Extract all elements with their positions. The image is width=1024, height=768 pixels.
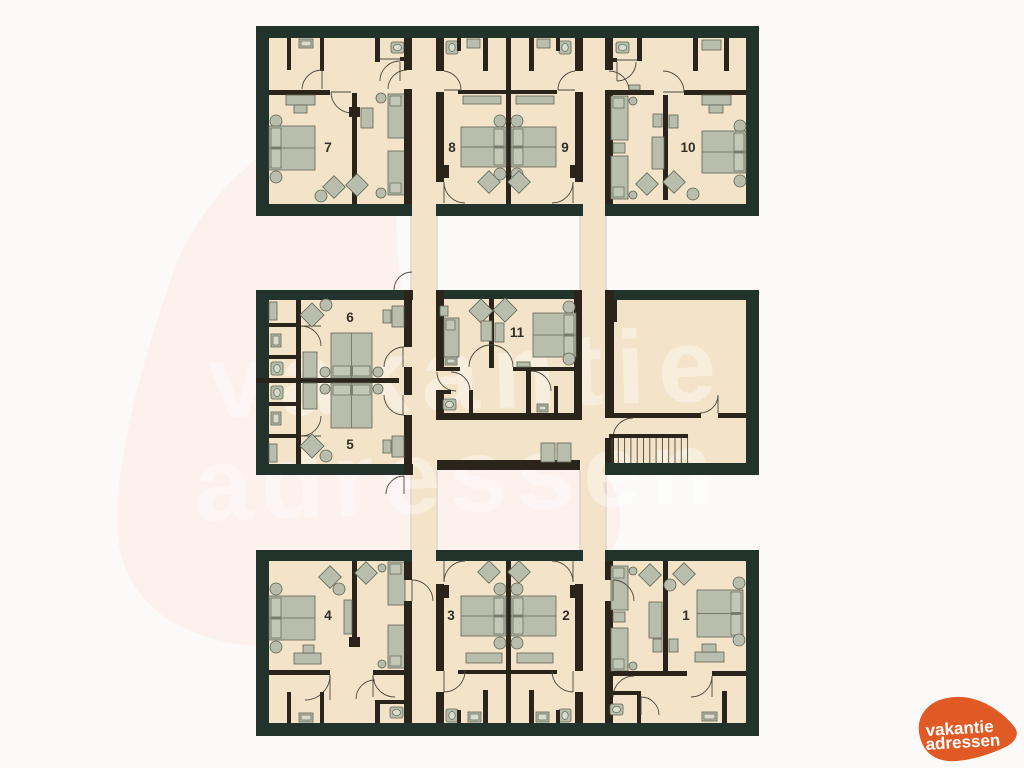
svg-text:5: 5 (346, 437, 354, 452)
svg-text:6: 6 (346, 310, 354, 325)
svg-text:8: 8 (448, 140, 456, 155)
svg-text:4: 4 (324, 608, 332, 623)
svg-text:1: 1 (682, 608, 690, 623)
svg-text:10: 10 (680, 140, 695, 155)
svg-text:3: 3 (447, 608, 455, 623)
svg-text:9: 9 (561, 140, 569, 155)
svg-text:2: 2 (562, 608, 570, 623)
svg-text:7: 7 (324, 140, 332, 155)
svg-text:11: 11 (510, 325, 525, 340)
svg-text:adressen: adressen (192, 410, 724, 544)
